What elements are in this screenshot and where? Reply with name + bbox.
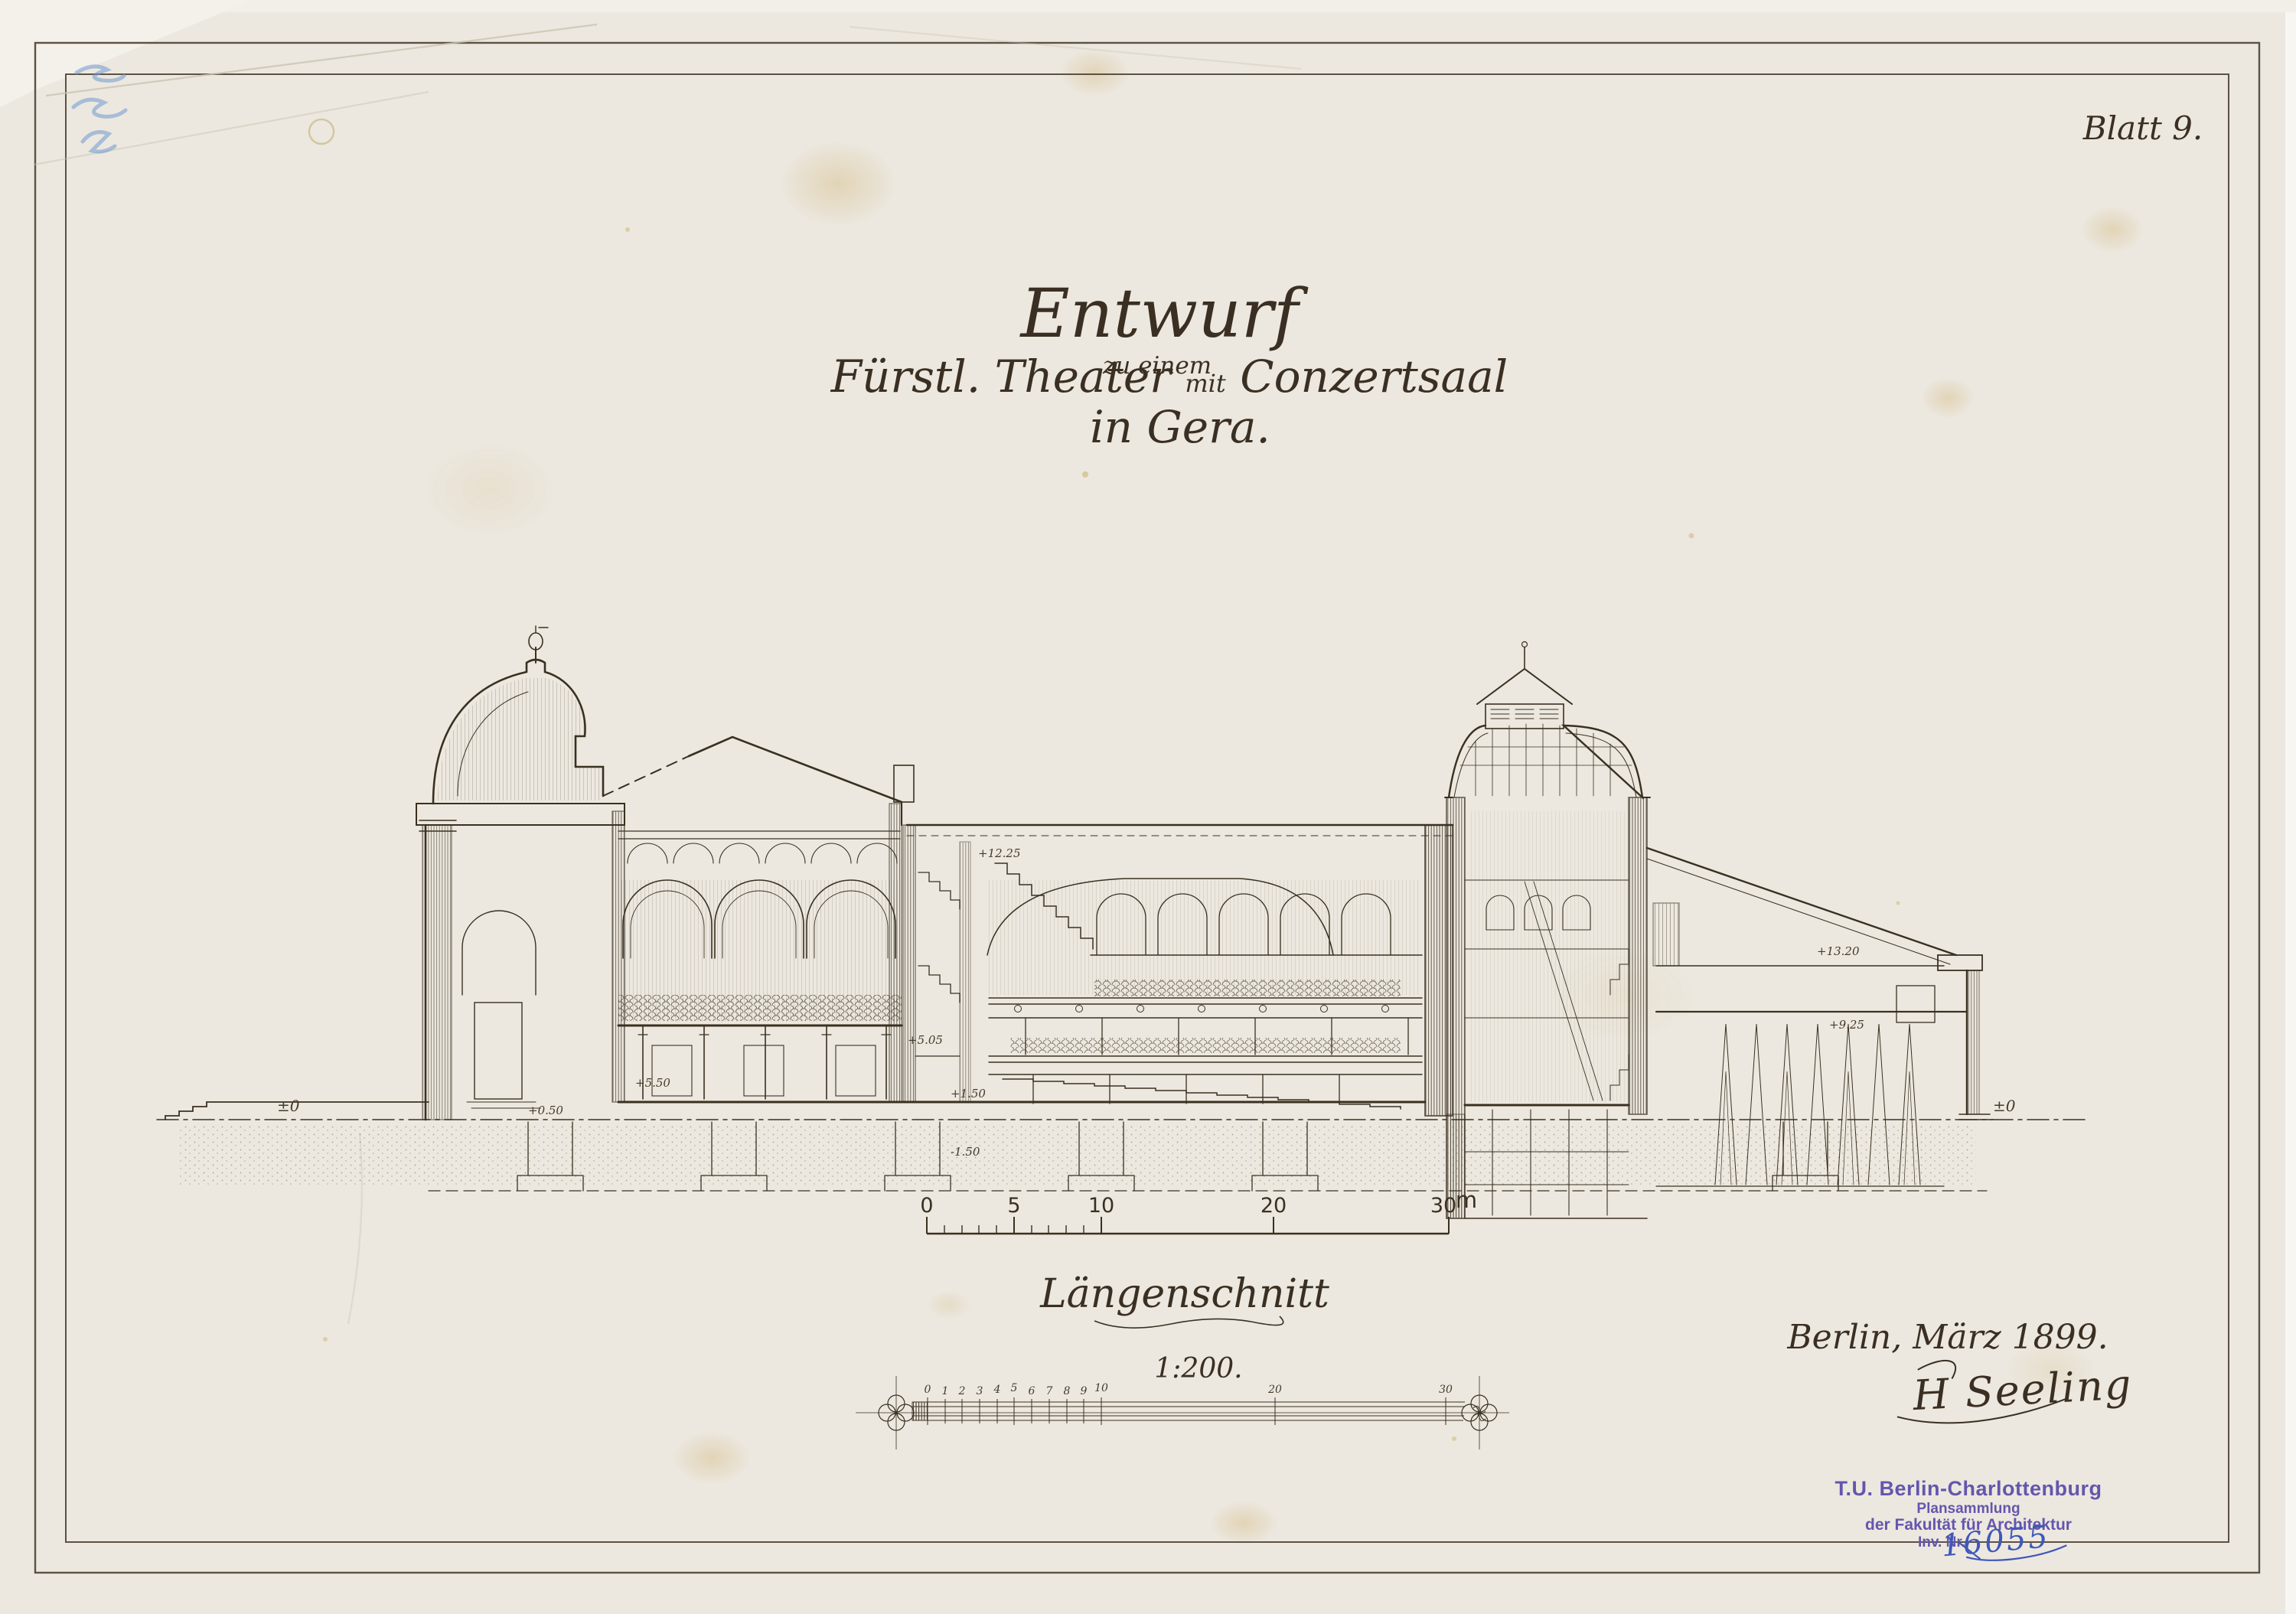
- level-minus150: -1.50: [951, 1145, 980, 1159]
- ruler-label-20: 20: [1267, 1384, 1282, 1396]
- level-ground-right: ±0: [1993, 1097, 2016, 1115]
- place-date: Berlin, März 1899.: [1786, 1318, 2108, 1357]
- ruler-label-6: 6: [1029, 1385, 1035, 1397]
- ruler-label-1: 1: [942, 1385, 949, 1397]
- ruler-label-3: 3: [977, 1385, 983, 1397]
- title-line3: Fürstl. Theater mit Conzertsaal: [830, 351, 1508, 403]
- level-plus050: +0.50: [528, 1104, 563, 1117]
- stamp-line2: Plansammlung: [1916, 1501, 2020, 1517]
- level-plus1320: +13.20: [1817, 944, 1860, 958]
- scale-label-20: 20: [1261, 1194, 1287, 1218]
- ruler-label-30: 30: [1439, 1384, 1453, 1396]
- ruler-label-8: 8: [1064, 1385, 1071, 1397]
- ruler-label-5: 5: [1011, 1382, 1018, 1394]
- ruler-label-9: 9: [1081, 1385, 1088, 1397]
- scale-caption: 1:200.: [1154, 1353, 1242, 1384]
- scale-label-5: 5: [1007, 1194, 1020, 1218]
- level-plus550: +5.50: [635, 1076, 670, 1090]
- ruler-label-7: 7: [1046, 1385, 1053, 1397]
- scale-unit: m: [1456, 1187, 1477, 1213]
- drawing-sheet: Blatt 9. Entwurf zu einem Fürstl. Theate…: [0, 0, 2296, 1614]
- scale-label-30: 30: [1430, 1194, 1456, 1218]
- level-plus505: +5.05: [908, 1033, 943, 1047]
- ruler-label-4: 4: [993, 1384, 1001, 1396]
- stamp-line1: T.U. Berlin-Charlottenburg: [1835, 1477, 2102, 1500]
- scale-label-0: 0: [920, 1194, 933, 1218]
- sheet-number: Blatt 9.: [2082, 109, 2203, 147]
- ruler-label-10: 10: [1094, 1382, 1108, 1394]
- ruler-label-0: 0: [925, 1384, 931, 1396]
- level-ground-left: ±0: [277, 1097, 300, 1115]
- level-plus1225: +12.25: [978, 846, 1021, 860]
- level-plus150: +1.50: [951, 1087, 986, 1100]
- drawing-caption: Längenschnitt: [1039, 1271, 1329, 1317]
- level-plus925: +9.25: [1829, 1018, 1864, 1032]
- scale-label-10: 10: [1088, 1194, 1114, 1218]
- ruler-label-2: 2: [958, 1385, 966, 1397]
- title-line4: in Gera.: [1090, 401, 1270, 453]
- title-line1: Entwurf: [1019, 274, 1309, 353]
